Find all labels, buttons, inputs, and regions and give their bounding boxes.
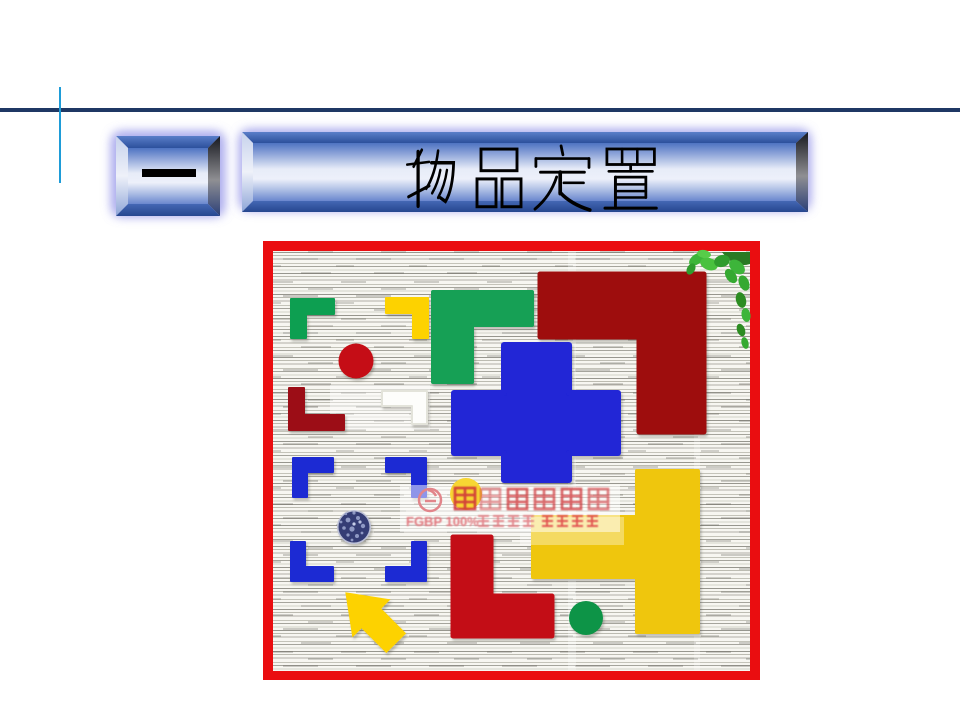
svg-text:FGBP 100%: FGBP 100% — [406, 514, 479, 529]
